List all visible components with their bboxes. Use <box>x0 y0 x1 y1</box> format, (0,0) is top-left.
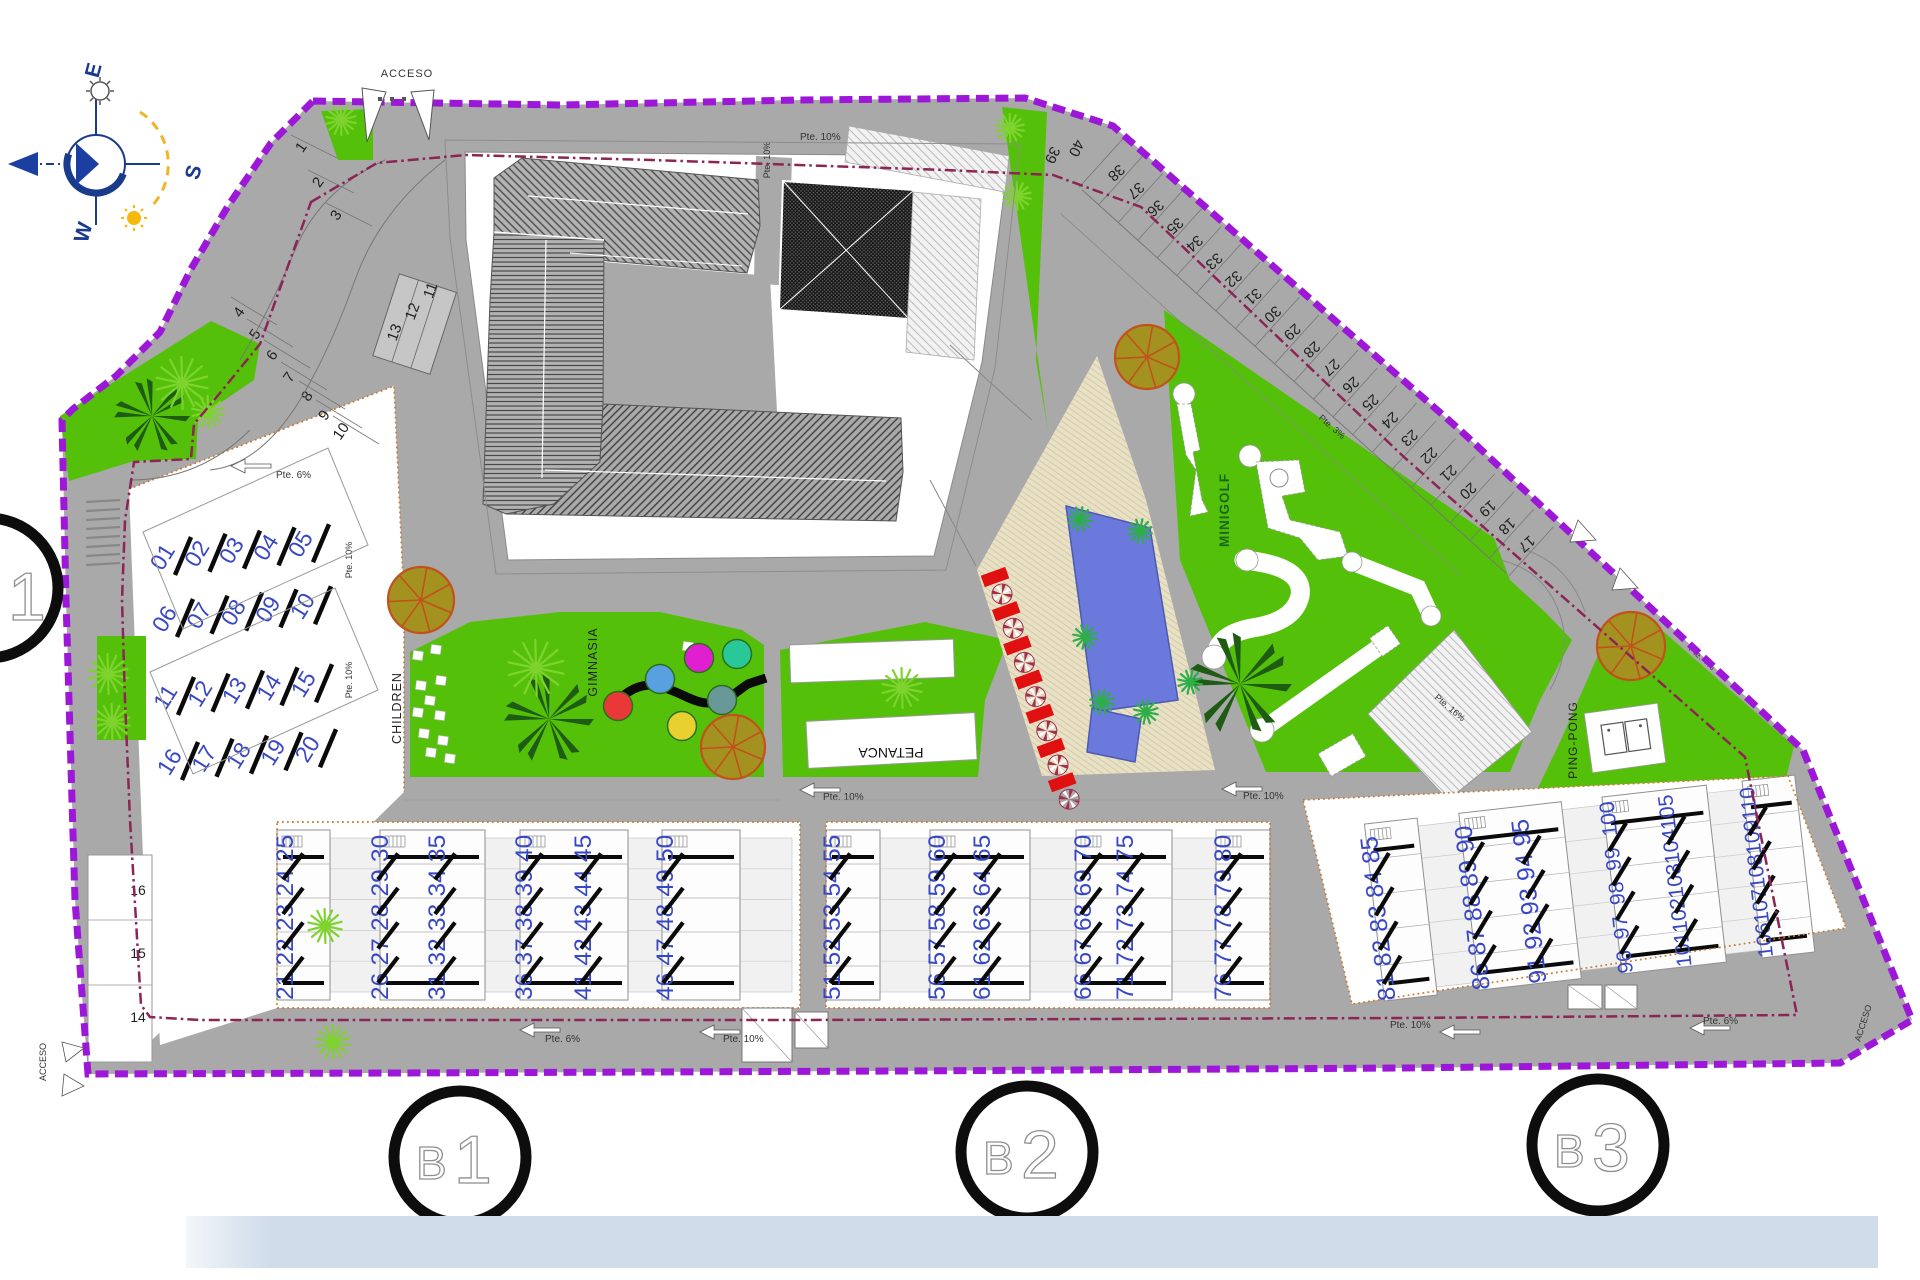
svg-text:98: 98 <box>1605 880 1630 906</box>
svg-text:102: 102 <box>1666 896 1693 933</box>
svg-text:40: 40 <box>511 835 538 862</box>
svg-text:B: B <box>983 1132 1014 1184</box>
svg-text:107: 107 <box>1747 887 1774 924</box>
svg-text:ACCESO: ACCESO <box>381 68 433 80</box>
svg-text:80: 80 <box>1210 835 1237 862</box>
svg-text:97: 97 <box>1609 915 1634 941</box>
svg-text:50: 50 <box>652 835 679 862</box>
svg-text:101: 101 <box>1670 931 1697 968</box>
svg-text:Pte. 10%: Pte. 10% <box>762 142 772 179</box>
svg-text:3: 3 <box>1592 1110 1630 1186</box>
svg-text:Pte. 10%: Pte. 10% <box>344 542 354 579</box>
svg-text:55: 55 <box>819 835 846 862</box>
svg-text:Pte. 10%: Pte. 10% <box>1390 1020 1431 1031</box>
svg-text:2: 2 <box>1021 1117 1059 1193</box>
svg-text:B: B <box>416 1137 447 1189</box>
svg-text:103: 103 <box>1662 862 1689 899</box>
svg-text:CHILDREN: CHILDREN <box>390 672 404 744</box>
svg-text:14: 14 <box>130 1009 146 1025</box>
svg-text:30: 30 <box>367 835 394 862</box>
svg-text:75: 75 <box>1112 835 1139 862</box>
svg-text:Pte. 10%: Pte. 10% <box>723 1034 764 1045</box>
svg-text:ACCESO: ACCESO <box>38 1043 48 1081</box>
svg-text:25: 25 <box>272 835 299 862</box>
svg-text:1: 1 <box>454 1122 492 1198</box>
svg-text:PETANCA: PETANCA <box>858 745 924 761</box>
svg-text:Pte. 6%: Pte. 6% <box>276 470 311 481</box>
svg-text:65: 65 <box>969 835 996 862</box>
svg-text:45: 45 <box>570 835 597 862</box>
svg-text:70: 70 <box>1070 835 1097 862</box>
svg-text:35: 35 <box>424 835 451 862</box>
svg-text:96: 96 <box>1612 949 1637 975</box>
svg-text:100: 100 <box>1596 800 1623 837</box>
svg-text:GIMNASIA: GIMNASIA <box>586 627 600 696</box>
svg-text:90: 90 <box>1450 824 1480 854</box>
svg-text:Pte. 10%: Pte. 10% <box>344 662 354 699</box>
svg-text:Pte. 6%: Pte. 6% <box>545 1034 580 1045</box>
svg-text:95: 95 <box>1507 818 1537 848</box>
svg-text:16: 16 <box>130 882 146 898</box>
svg-text:104: 104 <box>1658 827 1685 865</box>
svg-text:Pte. 6%: Pte. 6% <box>1703 1016 1738 1027</box>
svg-text:MINIGOLF: MINIGOLF <box>1217 473 1232 547</box>
svg-text:Pte. 10%: Pte. 10% <box>823 792 864 803</box>
svg-text:106: 106 <box>1751 921 1778 958</box>
svg-text:Pte. 10%: Pte. 10% <box>800 132 841 143</box>
svg-text:PING-PONG: PING-PONG <box>1566 701 1580 779</box>
svg-text:105: 105 <box>1654 793 1681 830</box>
svg-text:85: 85 <box>1356 835 1386 865</box>
svg-text:99: 99 <box>1601 846 1626 872</box>
svg-text:B: B <box>1554 1125 1585 1177</box>
svg-text:110: 110 <box>1736 786 1763 822</box>
svg-text:60: 60 <box>924 835 951 862</box>
svg-text:1: 1 <box>8 559 46 635</box>
